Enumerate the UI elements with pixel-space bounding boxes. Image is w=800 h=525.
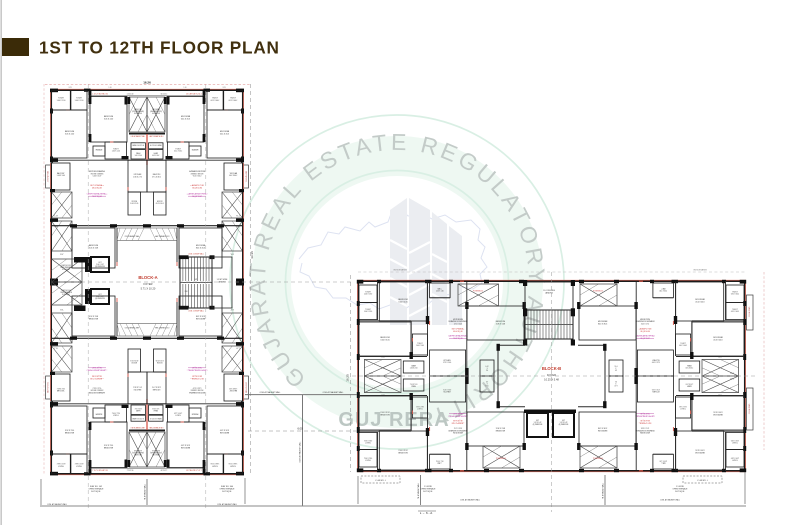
svg-text:1.10 C/O BD RM 2.30: 1.10 C/O BD RM 2.30 (186, 469, 202, 471)
svg-text:3.05 X 3.08: 3.05 X 3.08 (196, 315, 205, 317)
svg-text:5.71 X 5.05: 5.71 X 5.05 (454, 427, 462, 429)
svg-text:COM. AT. MAGNET WALL: COM. AT. MAGNET WALL (460, 499, 480, 502)
svg-text:TOILET: TOILET (365, 441, 371, 443)
svg-text:NATHI JAV: NATHI JAV (134, 108, 141, 111)
svg-text:COM. AT. MAGNET WALL: COM. AT. MAGNET WALL (299, 441, 302, 462)
svg-text:2.43: 2.43 (54, 226, 58, 228)
svg-text:10.25 X 5.48: 10.25 X 5.48 (544, 378, 559, 382)
svg-text:1.27: 1.27 (54, 347, 58, 349)
svg-text:KITCHEN: KITCHEN (652, 390, 660, 392)
svg-text:3.00 X 3.05: 3.00 X 3.05 (380, 339, 389, 341)
svg-text:1.00 X 2.00: 1.00 X 2.00 (135, 407, 142, 409)
svg-text:1.00 X 1.20: 1.00 X 1.20 (112, 411, 120, 413)
svg-text:L 5.48 W.D. L: L 5.48 W.D. L (375, 480, 386, 482)
svg-text:LIFT: LIFT (536, 420, 539, 422)
svg-text:48.04 SQ.M.: 48.04 SQ.M. (191, 187, 202, 189)
svg-text:5.05 X 5.07: 5.05 X 5.07 (93, 176, 102, 178)
svg-text:1.00 X 2.00: 1.00 X 2.00 (152, 407, 159, 409)
svg-text:1.80 X 2.75: 1.80 X 2.75 (152, 176, 161, 178)
svg-text:1ST TO 12TH FLOOR PLAN: 1ST TO 12TH FLOOR PLAN (39, 38, 280, 58)
svg-text:1.00 X 2.00: 1.00 X 2.00 (685, 368, 693, 370)
svg-text:3.08 X 3.08: 3.08 X 3.08 (496, 323, 505, 325)
svg-text:BALC.: BALC. (438, 462, 443, 465)
svg-text:2.00 X 1.00: 2.00 X 1.00 (659, 459, 667, 461)
svg-text:GUJ RERA: GUJ RERA (338, 409, 449, 431)
svg-text:1.00 X 2.05: 1.00 X 2.05 (156, 359, 164, 361)
svg-text:BALC.: BALC. (660, 462, 665, 465)
svg-text:2.00 X 1.97: 2.00 X 1.97 (96, 296, 104, 298)
svg-text:LINE AT MAGNET WALL: LINE AT MAGNET WALL (131, 426, 146, 429)
svg-text:TOILET: TOILET (732, 441, 738, 443)
svg-text:8.45 X 4.06: 8.45 X 4.06 (134, 449, 142, 451)
svg-text:33.36: 33.36 (250, 251, 254, 259)
svg-text:16.25: 16.25 (346, 374, 350, 382)
svg-text:BALCONY: BALCONY (57, 389, 66, 392)
svg-text:1.00 X 2.00: 1.00 X 2.00 (135, 155, 142, 157)
svg-text:C/O AT MAGNET WALL: C/O AT MAGNET WALL (154, 235, 169, 238)
svg-text:TM. AT MAGNET WALL: TM. AT MAGNET WALL (144, 484, 147, 500)
svg-text:2.00 X 1.00: 2.00 X 1.00 (436, 459, 444, 461)
svg-text:COM. AT. MAGNET WALL: COM. AT. MAGNET WALL (660, 499, 680, 502)
svg-text:5.6 M W ROAD: 5.6 M W ROAD (748, 403, 751, 414)
svg-text:LO AT 4.5 BSMT WALL: LO AT 4.5 BSMT WALL (188, 253, 204, 256)
svg-text:WASH: WASH (687, 365, 691, 368)
svg-text:5.05 X 5.07: 5.05 X 5.07 (193, 176, 202, 178)
svg-text:48.04 SQ.M.: 48.04 SQ.M. (453, 419, 463, 421)
svg-text:GM SIDE MARGIN: GM SIDE MARGIN (693, 269, 707, 272)
svg-text:TOILET: TOILET (113, 149, 119, 151)
svg-text:3.00 X 3.05: 3.00 X 3.05 (713, 411, 722, 413)
svg-text:TOILET: TOILET (365, 459, 371, 461)
svg-text:1.97: 1.97 (60, 308, 64, 310)
svg-text:3: 3 (615, 382, 616, 384)
svg-text:1.97: 1.97 (231, 254, 235, 256)
svg-text:1.00 X 2.00: 1.00 X 2.00 (685, 382, 693, 384)
svg-text:5.71 X 10.20: 5.71 X 10.20 (141, 287, 156, 291)
svg-text:5.71 X 5.05: 5.71 X 5.05 (454, 323, 462, 325)
svg-text:76.87 SQ.M.: 76.87 SQ.M. (453, 338, 463, 340)
svg-text:3.05 X 4.00: 3.05 X 4.00 (65, 429, 74, 431)
svg-text:1.00 X 1.90: 1.00 X 1.90 (229, 462, 238, 464)
svg-text:1.97 X 2.42: 1.97 X 2.42 (560, 422, 568, 424)
svg-text:NATHI JAV: NATHI JAV (152, 108, 159, 111)
svg-text:1.97 X 2.42: 1.97 X 2.42 (534, 422, 542, 424)
svg-text:2.0: 2.0 (615, 370, 617, 372)
svg-text:1.80 X 2.75: 1.80 X 2.75 (152, 386, 161, 388)
svg-text:BALCONY: BALCONY (229, 172, 238, 175)
svg-text:3.00 X 4.05: 3.00 X 4.05 (398, 301, 407, 303)
svg-text:KITCHEN: KITCHEN (444, 390, 452, 392)
svg-text:DN: DN (185, 291, 188, 293)
svg-text:3.00 X 4.05: 3.00 X 4.05 (695, 449, 704, 451)
svg-text:2.00 X 1.97: 2.00 X 1.97 (96, 264, 104, 266)
svg-text:BALCONY: BALCONY (57, 172, 66, 175)
svg-text:1.00 X 1.20: 1.00 X 1.20 (174, 411, 182, 413)
svg-text:1.75 X 1.00: 1.75 X 1.00 (652, 362, 660, 364)
svg-text:8.07 SQ.M.: 8.07 SQ.M. (222, 491, 232, 493)
svg-text:TOILET: TOILET (365, 292, 371, 294)
svg-text:LIFT: LIFT (562, 420, 565, 422)
svg-text:L.02: L.02 (614, 366, 617, 368)
svg-text:LINE AT MAGNET WALL: LINE AT MAGNET WALL (131, 135, 146, 138)
svg-text:3.11: 3.11 (369, 373, 372, 375)
svg-text:1.00 X 1.90: 1.00 X 1.90 (211, 100, 220, 102)
svg-text:1.10: 1.10 (108, 87, 111, 89)
svg-text:3.11: 3.11 (730, 373, 733, 375)
svg-text:1.00 X 1.40: 1.00 X 1.40 (416, 405, 424, 407)
svg-text:5.05 X 5.07: 5.05 X 5.07 (193, 386, 202, 388)
svg-text:8.07 SQ.M.: 8.07 SQ.M. (62, 294, 70, 296)
svg-text:1.10 2.30: 1.10 2.30 (161, 93, 168, 95)
svg-text:3.00 X 3.05: 3.00 X 3.05 (380, 411, 389, 413)
svg-text:TOILET: TOILET (732, 459, 738, 461)
svg-text:5.60 M W ROAD: 5.60 M W ROAD (47, 170, 50, 182)
svg-text:1.27: 1.27 (54, 216, 58, 218)
svg-text:BLOCK-A: BLOCK-A (138, 275, 157, 280)
svg-text:1.27: 1.27 (236, 347, 240, 349)
svg-text:1.06 X 3.00: 1.06 X 3.00 (57, 175, 65, 177)
svg-text:MSTR BDRM: MSTR BDRM (453, 431, 463, 433)
svg-text:1.00 X 2.00: 1.00 X 2.00 (410, 368, 418, 370)
svg-text:1.00 X 1.40: 1.00 X 1.40 (416, 345, 424, 347)
svg-text:P DWN BLDG: P DWN BLDG (593, 291, 604, 293)
svg-text:TOILET: TOILET (175, 149, 181, 151)
svg-text:3.05 X 3.08: 3.05 X 3.08 (196, 247, 205, 249)
svg-text:1.00 X 1.90: 1.00 X 1.90 (731, 456, 739, 458)
svg-text:5.60 M W ROAD: 5.60 M W ROAD (244, 170, 247, 182)
svg-text:3.23: 3.23 (68, 87, 71, 89)
svg-text:2.43: 2.43 (54, 336, 58, 338)
svg-text:1.00 X 1.90: 1.00 X 1.90 (364, 311, 372, 313)
svg-text:P DWN BLDG: P DWN BLDG (496, 458, 507, 460)
svg-text:TOILET: TOILET (175, 414, 181, 416)
svg-text:MSTR BDRM: MSTR BDRM (453, 319, 463, 321)
svg-text:1.00 X 1.90: 1.00 X 1.90 (57, 100, 66, 102)
svg-text:1.00 X 1.20: 1.00 X 1.20 (112, 151, 120, 153)
svg-text:1.00 X 2.05: 1.00 X 2.05 (156, 203, 164, 205)
svg-text:NATHI JAV: NATHI JAV (152, 453, 159, 456)
svg-text:1.80 X 2.75: 1.80 X 2.75 (133, 386, 142, 388)
svg-text:WASH: WASH (154, 152, 158, 155)
svg-text:2.0: 2.0 (486, 380, 488, 382)
svg-text:3.08 X 3.08: 3.08 X 3.08 (496, 427, 505, 429)
svg-text:1.00 X 2.00: 1.00 X 2.00 (152, 155, 159, 157)
svg-text:2.00 X 1.00: 2.00 X 1.00 (659, 291, 667, 293)
svg-text:48.04 SQ.M.: 48.04 SQ.M. (92, 375, 103, 377)
svg-text:1.00 X 1.90: 1.00 X 1.90 (364, 294, 372, 296)
svg-text:(8) PERSONS: (8) PERSONS (533, 424, 543, 426)
svg-text:P DWN BLDG: P DWN BLDG (593, 458, 604, 460)
svg-text:2.00 X 1.00: 2.00 X 1.00 (436, 291, 444, 293)
svg-text:1.00 X 1.90: 1.00 X 1.90 (229, 100, 238, 102)
svg-text:BALC.: BALC. (660, 288, 665, 291)
svg-text:1.27: 1.27 (236, 216, 240, 218)
svg-text:3.05 X 4.00: 3.05 X 4.00 (181, 118, 190, 120)
svg-text:3.05 X 4.00: 3.05 X 4.00 (104, 444, 113, 446)
svg-text:1.00 X 2.05: 1.00 X 2.05 (130, 359, 138, 361)
svg-text:(8) PERSONS: (8) PERSONS (559, 424, 569, 426)
svg-text:KITCHEN: KITCHEN (444, 360, 452, 362)
svg-text:1.10 2.30: 1.10 2.30 (127, 469, 134, 471)
svg-text:NATHI JAV: NATHI JAV (134, 453, 141, 456)
svg-text:8.07 SQ.M.: 8.07 SQ.M. (423, 491, 433, 493)
svg-text:C/O AT MAGNET WALL: C/O AT MAGNET WALL (125, 235, 140, 238)
svg-text:KITCHEN: KITCHEN (652, 360, 660, 362)
svg-text:1.06 X 3.00: 1.06 X 3.00 (57, 387, 65, 389)
svg-text:3.11: 3.11 (369, 377, 372, 379)
svg-text:1.00 X 1.90: 1.00 X 1.90 (57, 462, 66, 464)
svg-text:L ← 6 - A: L ← 6 - A (420, 511, 432, 515)
svg-text:3.08 X 3.08: 3.08 X 3.08 (598, 427, 607, 429)
svg-text:WASH: WASH (411, 365, 415, 368)
svg-text:76.87 SQ.M.: 76.87 SQ.M. (453, 412, 463, 414)
svg-text:1.00 X 1.90: 1.00 X 1.90 (75, 462, 84, 464)
svg-text:1.10 C/O BD RM 2.30: 1.10 C/O BD RM 2.30 (92, 469, 108, 471)
svg-text:1.00 X 2.05: 1.00 X 2.05 (130, 203, 138, 205)
svg-text:TOILET: TOILET (732, 309, 738, 311)
svg-text:1.00 X 1.20: 1.00 X 1.20 (174, 151, 182, 153)
svg-text:LO AT 4.5 BSMT WALL: LO AT 4.5 BSMT WALL (188, 310, 204, 313)
svg-text:C/O AT MAGNET WALL: C/O AT MAGNET WALL (154, 326, 169, 329)
svg-text:LIFT: LIFT (98, 294, 101, 296)
svg-text:WASH 1.00 X 2.00: WASH 1.00 X 2.00 (132, 144, 144, 147)
svg-text:48.04 SQ.M.: 48.04 SQ.M. (191, 375, 202, 377)
svg-text:1.75 X 1.00: 1.75 X 1.00 (443, 362, 451, 364)
svg-text:1.00 X 1.90: 1.00 X 1.90 (731, 311, 739, 313)
svg-text:48.04 SQ.M.: 48.04 SQ.M. (640, 331, 650, 333)
svg-text:1.75 X 1.00: 1.75 X 1.00 (443, 388, 451, 390)
svg-text:5.71 X 5.05: 5.71 X 5.05 (641, 323, 649, 325)
svg-text:3.00 X 3.05: 3.00 X 3.05 (713, 339, 722, 341)
svg-text:3.23: 3.23 (222, 87, 225, 89)
svg-text:3.05 X 4.00: 3.05 X 4.00 (65, 133, 74, 135)
svg-text:STORE: STORE (131, 361, 136, 363)
svg-text:3.05 X 4.00: 3.05 X 4.00 (104, 118, 113, 120)
svg-text:STORE: STORE (157, 201, 162, 203)
svg-text:COM. AT. MAGNET WALL: COM. AT. MAGNET WALL (259, 391, 280, 394)
svg-text:PASSAGE: PASSAGE (96, 149, 103, 152)
svg-text:1.00 X 1.90: 1.00 X 1.90 (731, 294, 739, 296)
svg-text:3.11: 3.11 (730, 377, 733, 379)
svg-text:FLAT NO.103: FLAT NO.103 (61, 264, 70, 267)
svg-text:WASH: WASH (136, 409, 140, 412)
svg-text:5.6 M W ROAD: 5.6 M W ROAD (748, 306, 751, 317)
svg-text:WASH: WASH (136, 152, 140, 155)
svg-text:C/O AT MAGNET WALL: C/O AT MAGNET WALL (125, 326, 140, 329)
svg-text:1.10 2.30: 1.10 2.30 (127, 93, 134, 95)
svg-text:WASH: WASH (687, 385, 691, 388)
svg-text:1.00 X 1.90: 1.00 X 1.90 (75, 100, 84, 102)
svg-text:2.0: 2.0 (615, 380, 617, 382)
svg-text:8.45 X 4.06: 8.45 X 4.06 (152, 449, 160, 451)
svg-text:PASSAGE: PASSAGE (192, 413, 199, 416)
svg-text:1.00 X 1.40: 1.00 X 1.40 (679, 345, 687, 347)
svg-text:TOILET: TOILET (365, 309, 371, 311)
svg-text:1.06 X 3.00: 1.06 X 3.00 (229, 387, 237, 389)
svg-text:8.45 X 4.06: 8.45 X 4.06 (152, 113, 160, 115)
svg-text:BALCONY: BALCONY (229, 389, 238, 392)
svg-text:P DWN BLDG: P DWN BLDG (473, 291, 484, 293)
svg-text:LINE AT MAGNET WALL: LINE AT MAGNET WALL (149, 135, 164, 138)
svg-text:48.04 SQ.M.: 48.04 SQ.M. (640, 419, 650, 421)
svg-text:48.04 SQ.M.: 48.04 SQ.M. (453, 331, 463, 333)
svg-text:COM. AT. MAGNET WALL: COM. AT. MAGNET WALL (322, 391, 343, 394)
svg-text:3.05 X 4.00: 3.05 X 4.00 (220, 429, 229, 431)
svg-text:48.04 SQ.M.: 48.04 SQ.M. (92, 187, 103, 189)
svg-text:3.05 X 4.00: 3.05 X 4.00 (181, 444, 190, 446)
svg-text:PASSAGE: PASSAGE (96, 413, 103, 416)
svg-text:5.05 X 5.07: 5.05 X 5.07 (93, 386, 102, 388)
svg-text:1.10 2.30: 1.10 2.30 (161, 469, 168, 471)
svg-text:2.0: 2.0 (486, 370, 488, 372)
svg-text:TOILET: TOILET (732, 292, 738, 294)
svg-text:1.00 X 1.40: 1.00 X 1.40 (679, 405, 687, 407)
svg-text:FLAT NO.104: FLAT NO.104 (61, 289, 70, 292)
svg-text:L 5.48 W.D. L: L 5.48 W.D. L (697, 480, 708, 482)
svg-text:1.00 X 1.90: 1.00 X 1.90 (364, 439, 372, 441)
svg-text:L.02: L.02 (614, 384, 617, 386)
svg-text:WASH 1.00 X 2.00: WASH 1.00 X 2.00 (132, 417, 144, 420)
svg-text:8.07 SQ.M.: 8.07 SQ.M. (91, 491, 101, 493)
svg-text:PASSAGE: PASSAGE (192, 149, 199, 152)
svg-text:1.97: 1.97 (60, 254, 64, 256)
svg-text:FOYER: FOYER (144, 282, 153, 286)
svg-text:1.10 C/O BD RM 2.30: 1.10 C/O BD RM 2.30 (186, 93, 202, 95)
svg-text:1.10 C/O BD RM 2.30: 1.10 C/O BD RM 2.30 (92, 93, 108, 95)
svg-text:1.00 X 1.90: 1.00 X 1.90 (211, 462, 220, 464)
svg-text:COM. AT. MAGNET WALL: COM. AT. MAGNET WALL (217, 503, 237, 506)
svg-text:COM. AT. MAGNET WALL: COM. AT. MAGNET WALL (47, 503, 67, 506)
svg-text:3.05 X 4.00: 3.05 X 4.00 (220, 133, 229, 135)
svg-text:TOILET: TOILET (417, 407, 422, 409)
svg-text:LINE AT MAGNET WALL: LINE AT MAGNET WALL (149, 426, 164, 429)
svg-text:8.45 X 4.06: 8.45 X 4.06 (134, 113, 142, 115)
svg-text:8.07 SQ.M.: 8.07 SQ.M. (675, 491, 685, 493)
svg-text:3.08 X 3.08: 3.08 X 3.08 (598, 323, 607, 325)
svg-text:TOILET: TOILET (417, 343, 422, 345)
svg-text:1.00 X 2.00: 1.00 X 2.00 (410, 382, 418, 384)
svg-text:1.10: 1.10 (183, 87, 186, 89)
svg-text:5.60 M W ROAD: 5.60 M W ROAD (244, 382, 247, 394)
svg-text:L.02: L.02 (486, 384, 489, 386)
svg-text:3: 3 (615, 368, 616, 370)
svg-text:1.80 X 2.75: 1.80 X 2.75 (133, 176, 142, 178)
svg-text:WASH 1.00 X 2.00: WASH 1.00 X 2.00 (150, 417, 162, 420)
svg-text:MSTR BDRM: MSTR BDRM (640, 319, 650, 321)
svg-text:STORE: STORE (157, 361, 162, 363)
svg-text:3.05 X 3.08: 3.05 X 3.08 (89, 315, 98, 317)
svg-text:3.00 X 4.05: 3.00 X 4.05 (695, 301, 704, 303)
svg-text:TOILET: TOILET (113, 414, 119, 416)
svg-text:WASH: WASH (154, 409, 158, 412)
svg-text:3.05 X 3.08: 3.05 X 3.08 (89, 247, 98, 249)
svg-text:1.75 X 1.00: 1.75 X 1.00 (652, 388, 660, 390)
svg-text:76.87 SQ.M.: 76.87 SQ.M. (640, 338, 650, 340)
svg-text:1.06 X 3.00: 1.06 X 3.00 (229, 175, 237, 177)
svg-text:1.00 X 1.90: 1.00 X 1.90 (364, 456, 372, 458)
svg-text:2.43: 2.43 (236, 336, 240, 338)
svg-text:WASH 1.00 X 2.00: WASH 1.00 X 2.00 (150, 144, 162, 147)
svg-text:STORE: STORE (131, 201, 136, 203)
svg-text:3.00 X 4.05: 3.00 X 4.05 (398, 449, 407, 451)
svg-text:MSTR BDRM: MSTR BDRM (640, 431, 650, 433)
svg-text:TM. AT MAGNET WALL: TM. AT MAGNET WALL (602, 483, 605, 499)
svg-text:L.02: L.02 (486, 366, 489, 368)
svg-text:5.71 X 5.05: 5.71 X 5.05 (641, 427, 649, 429)
svg-text:(8) PERSONS: (8) PERSONS (95, 298, 105, 300)
svg-text:LANDING: LANDING (545, 291, 554, 294)
svg-text:2.43: 2.43 (236, 226, 240, 228)
svg-text:76.87 SQ.M.: 76.87 SQ.M. (640, 412, 650, 414)
svg-text:TOILET: TOILET (680, 343, 685, 345)
svg-text:LIFT: LIFT (98, 262, 101, 264)
svg-text:(8) PERSONS: (8) PERSONS (95, 266, 105, 268)
svg-text:5.60 M W ROAD: 5.60 M W ROAD (47, 382, 50, 394)
svg-text:1.00 X 1.90: 1.00 X 1.90 (731, 439, 739, 441)
svg-text:6.00: 6.00 (297, 427, 303, 431)
svg-text:8.07 SQ.M.: 8.07 SQ.M. (62, 269, 70, 271)
svg-text:16.26: 16.26 (143, 81, 151, 85)
svg-text:TM. AT MAGNET WALL: TM. AT MAGNET WALL (417, 483, 420, 499)
svg-text:TOILET: TOILET (680, 407, 685, 409)
